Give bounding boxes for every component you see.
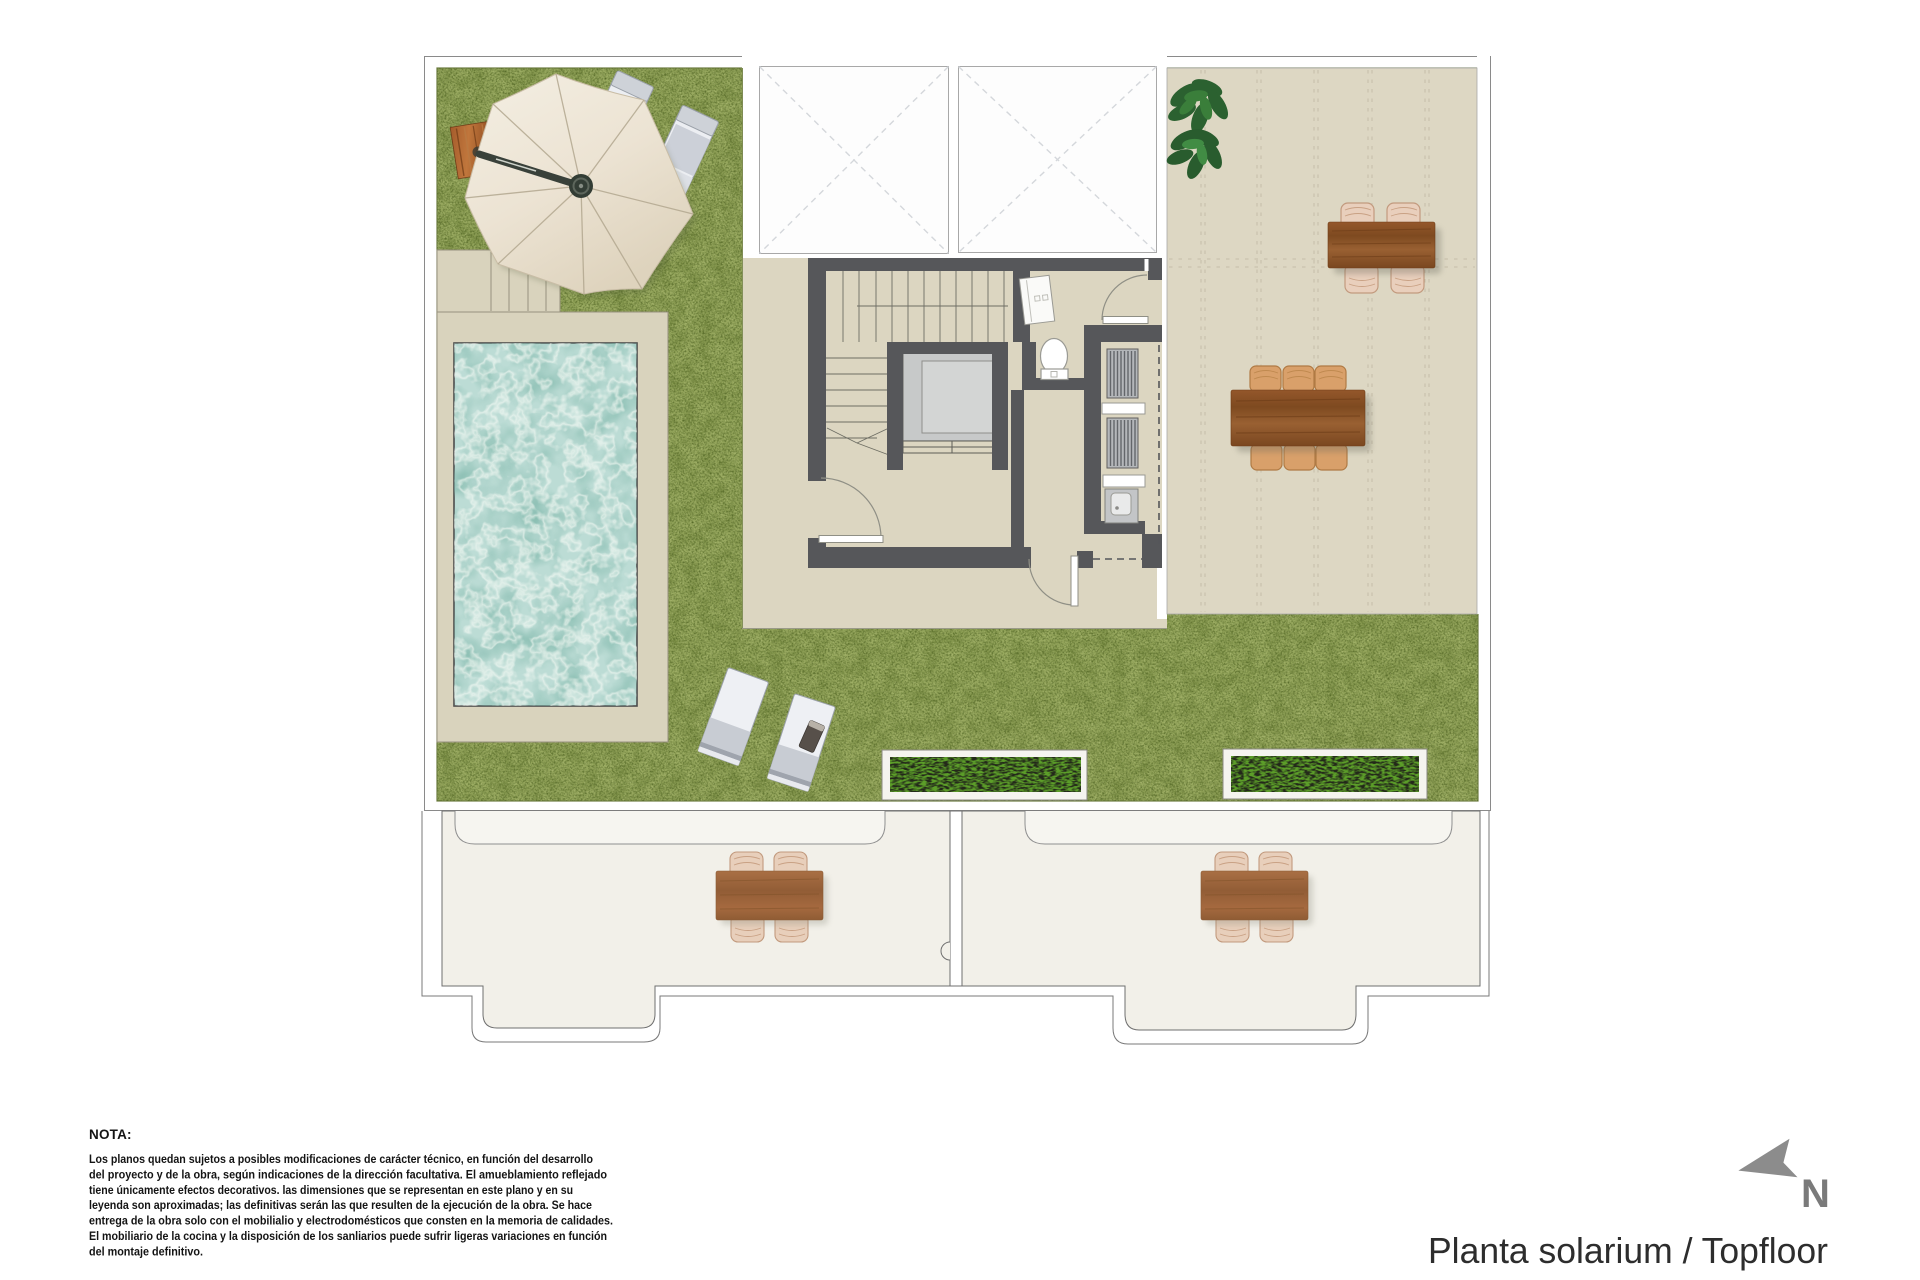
- svg-text:del proyecto y de la obra, seg: del proyecto y de la obra, según indicac…: [89, 1167, 607, 1181]
- svg-text:leyenda son aproximadas; las d: leyenda son aproximadas; las definitivas…: [89, 1198, 592, 1212]
- svg-text:entrega de la obra solo con el: entrega de la obra solo con el mobiliali…: [89, 1214, 613, 1228]
- svg-text:NOTA:: NOTA:: [89, 1127, 132, 1142]
- svg-text:N: N: [1801, 1172, 1830, 1216]
- svg-text:El mobiliario de la cocina y l: El mobiliario de la cocina y la disposic…: [89, 1229, 607, 1243]
- svg-text:del montaje definitivo.: del montaje definitivo.: [89, 1244, 203, 1258]
- svg-text:Planta solarium / Topfloor: Planta solarium / Topfloor: [1428, 1230, 1828, 1271]
- svg-text:Los planos quedan sujetos a po: Los planos quedan sujetos a posibles mod…: [89, 1152, 593, 1166]
- svg-text:tiene únicamente efectos decor: tiene únicamente efectos decorativos. la…: [89, 1183, 573, 1197]
